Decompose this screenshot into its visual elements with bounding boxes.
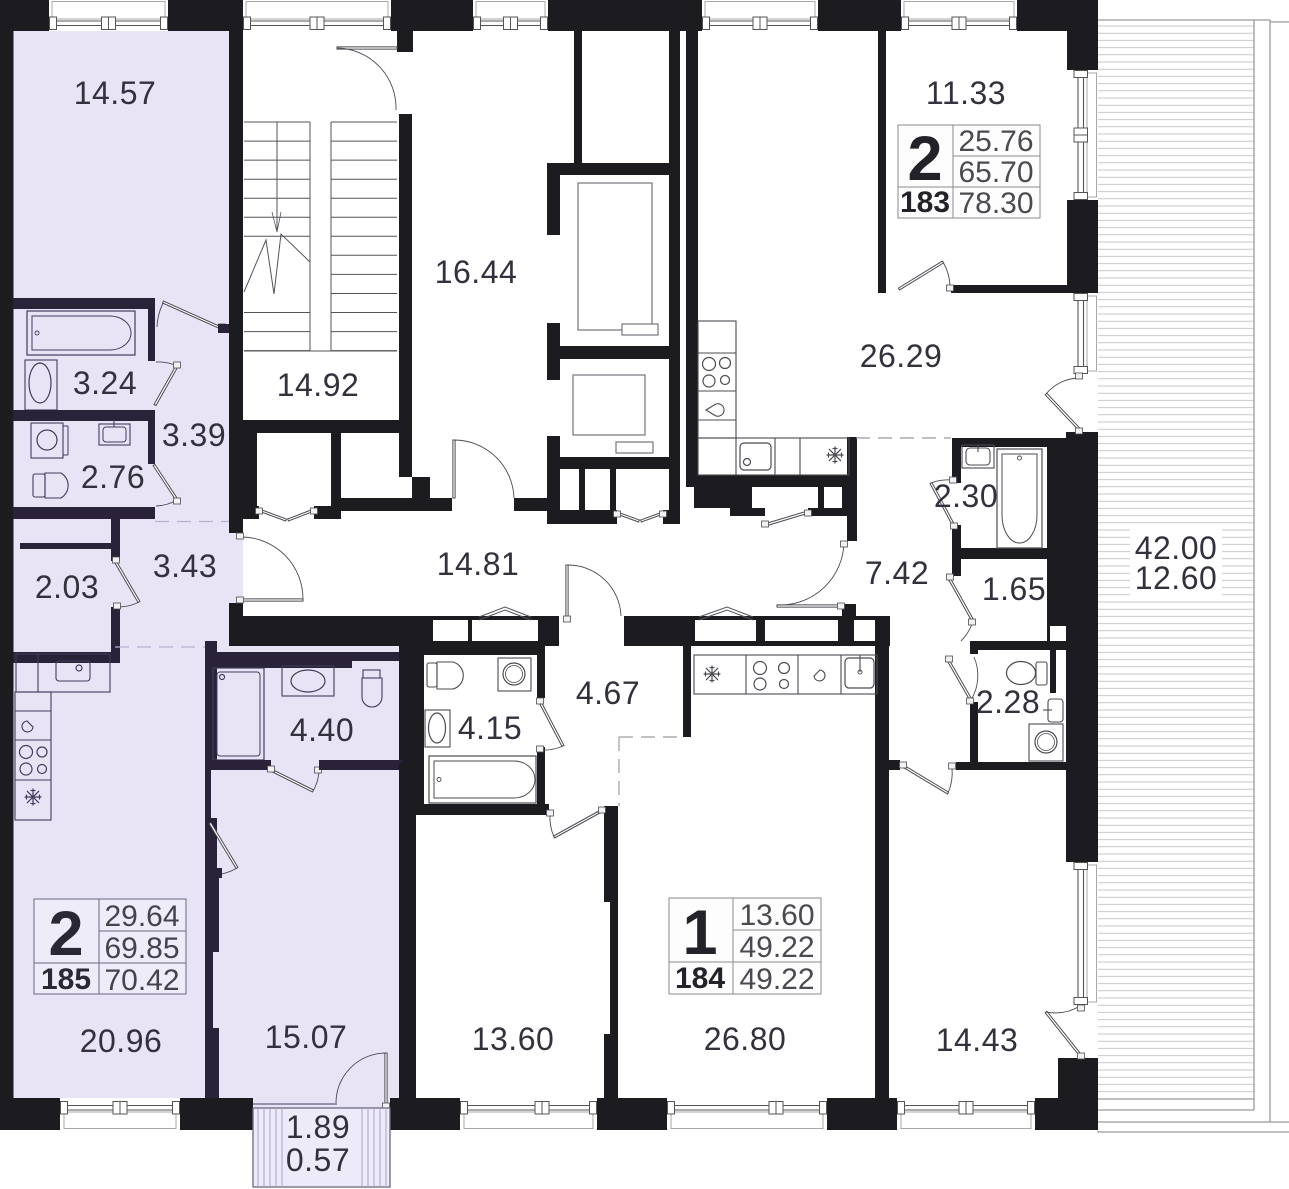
svg-text:2: 2 [907,124,942,194]
svg-text:2.30: 2.30 [934,478,998,514]
svg-text:26.80: 26.80 [704,1021,787,1057]
svg-text:3.24: 3.24 [73,365,137,401]
svg-text:4.67: 4.67 [576,675,640,711]
svg-text:1.65: 1.65 [982,571,1046,607]
svg-text:3.39: 3.39 [162,417,226,453]
svg-text:185: 185 [41,963,91,996]
svg-text:16.44: 16.44 [435,254,518,290]
svg-text:14.81: 14.81 [437,546,520,582]
svg-text:183: 183 [900,186,950,219]
svg-text:26.29: 26.29 [860,338,943,374]
svg-text:15.07: 15.07 [265,1019,348,1055]
svg-text:2.28: 2.28 [976,684,1040,720]
svg-text:13.60: 13.60 [472,1021,555,1057]
svg-text:2.03: 2.03 [35,569,99,605]
svg-text:4.40: 4.40 [290,712,354,748]
svg-text:14.43: 14.43 [936,1022,1019,1058]
svg-text:20.96: 20.96 [80,1023,163,1059]
svg-text:2.76: 2.76 [81,459,145,495]
svg-text:25.76: 25.76 [958,125,1033,158]
svg-text:65.70: 65.70 [958,156,1033,189]
svg-text:3.43: 3.43 [153,548,217,584]
svg-text:29.64: 29.64 [104,900,179,933]
svg-text:7.42: 7.42 [865,555,929,591]
svg-text:49.22: 49.22 [739,931,814,964]
svg-text:14.92: 14.92 [277,367,360,403]
svg-text:70.42: 70.42 [104,964,179,997]
svg-text:11.33: 11.33 [926,75,1006,111]
svg-text:184: 184 [675,962,725,995]
svg-text:14.57: 14.57 [74,75,157,111]
svg-text:4.15: 4.15 [458,710,522,746]
svg-text:78.30: 78.30 [958,187,1033,220]
svg-text:1.89: 1.89 [286,1109,350,1145]
svg-text:13.60: 13.60 [739,899,814,932]
svg-text:69.85: 69.85 [104,932,179,965]
svg-text:49.22: 49.22 [739,963,814,996]
svg-text:12.60: 12.60 [1135,560,1218,596]
svg-text:0.57: 0.57 [286,1142,350,1178]
svg-text:1: 1 [682,898,717,968]
svg-text:2: 2 [48,899,83,969]
